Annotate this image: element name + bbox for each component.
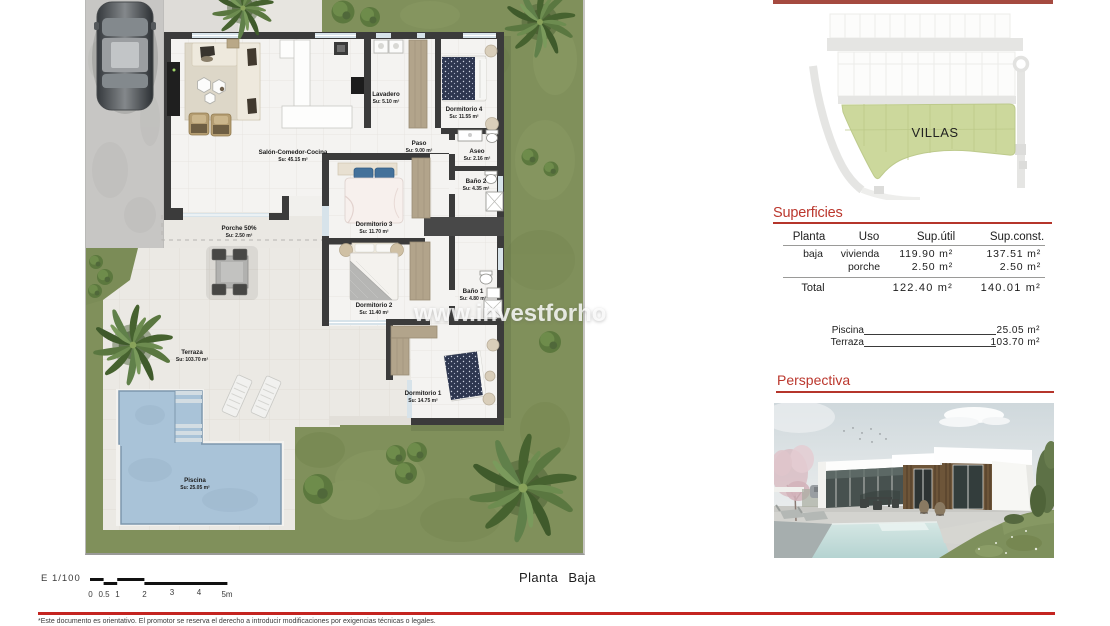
svg-text:Dormitorio 1: Dormitorio 1 xyxy=(405,390,442,397)
svg-text:Su: 5.10 m²: Su: 5.10 m² xyxy=(373,99,400,105)
svg-text:Su: 11.40 m²: Su: 11.40 m² xyxy=(359,310,389,316)
svg-text:2: 2 xyxy=(142,590,147,599)
svg-text:4: 4 xyxy=(197,588,202,597)
svg-text:Su: 9.00 m²: Su: 9.00 m² xyxy=(406,148,433,154)
svg-text:Su: 11.55 m²: Su: 11.55 m² xyxy=(449,114,479,120)
svg-text:Su: 2.50 m²: Su: 2.50 m² xyxy=(226,233,253,239)
svg-text:5m: 5m xyxy=(221,590,232,599)
svg-text:Lavadero: Lavadero xyxy=(372,91,400,98)
svg-text:Aseo: Aseo xyxy=(469,148,484,155)
svg-text:Su: 25.05 m²: Su: 25.05 m² xyxy=(180,485,210,491)
svg-text:Su: 14.75 m²: Su: 14.75 m² xyxy=(408,398,438,404)
svg-text:0.5: 0.5 xyxy=(98,590,110,599)
svg-text:Su: 2.16 m²: Su: 2.16 m² xyxy=(464,156,491,162)
svg-text:3: 3 xyxy=(170,588,175,597)
svg-text:1: 1 xyxy=(115,590,120,599)
svg-text:0: 0 xyxy=(88,590,93,599)
svg-text:Su: 11.70 m²: Su: 11.70 m² xyxy=(359,229,389,235)
svg-text:Salón-Comedor-Cocina: Salón-Comedor-Cocina xyxy=(259,149,328,156)
svg-text:Dormitorio 4: Dormitorio 4 xyxy=(446,106,483,113)
svg-text:Su: 45.15 m²: Su: 45.15 m² xyxy=(278,157,308,163)
svg-text:Terraza: Terraza xyxy=(181,349,203,356)
svg-text:Piscina: Piscina xyxy=(184,477,206,484)
svg-text:Su: 103.70 m²: Su: 103.70 m² xyxy=(176,357,209,363)
svg-text:Su: 4.35 m²: Su: 4.35 m² xyxy=(463,186,490,192)
svg-text:VILLAS: VILLAS xyxy=(911,125,958,140)
svg-text:Baño 2: Baño 2 xyxy=(466,178,487,185)
svg-text:Paso: Paso xyxy=(412,140,427,147)
svg-text:Baño 1: Baño 1 xyxy=(463,288,484,295)
svg-text:Dormitorio 2: Dormitorio 2 xyxy=(356,302,393,309)
svg-text:Porche 50%: Porche 50% xyxy=(221,225,257,232)
svg-text:Dormitorio 3: Dormitorio 3 xyxy=(356,221,393,228)
